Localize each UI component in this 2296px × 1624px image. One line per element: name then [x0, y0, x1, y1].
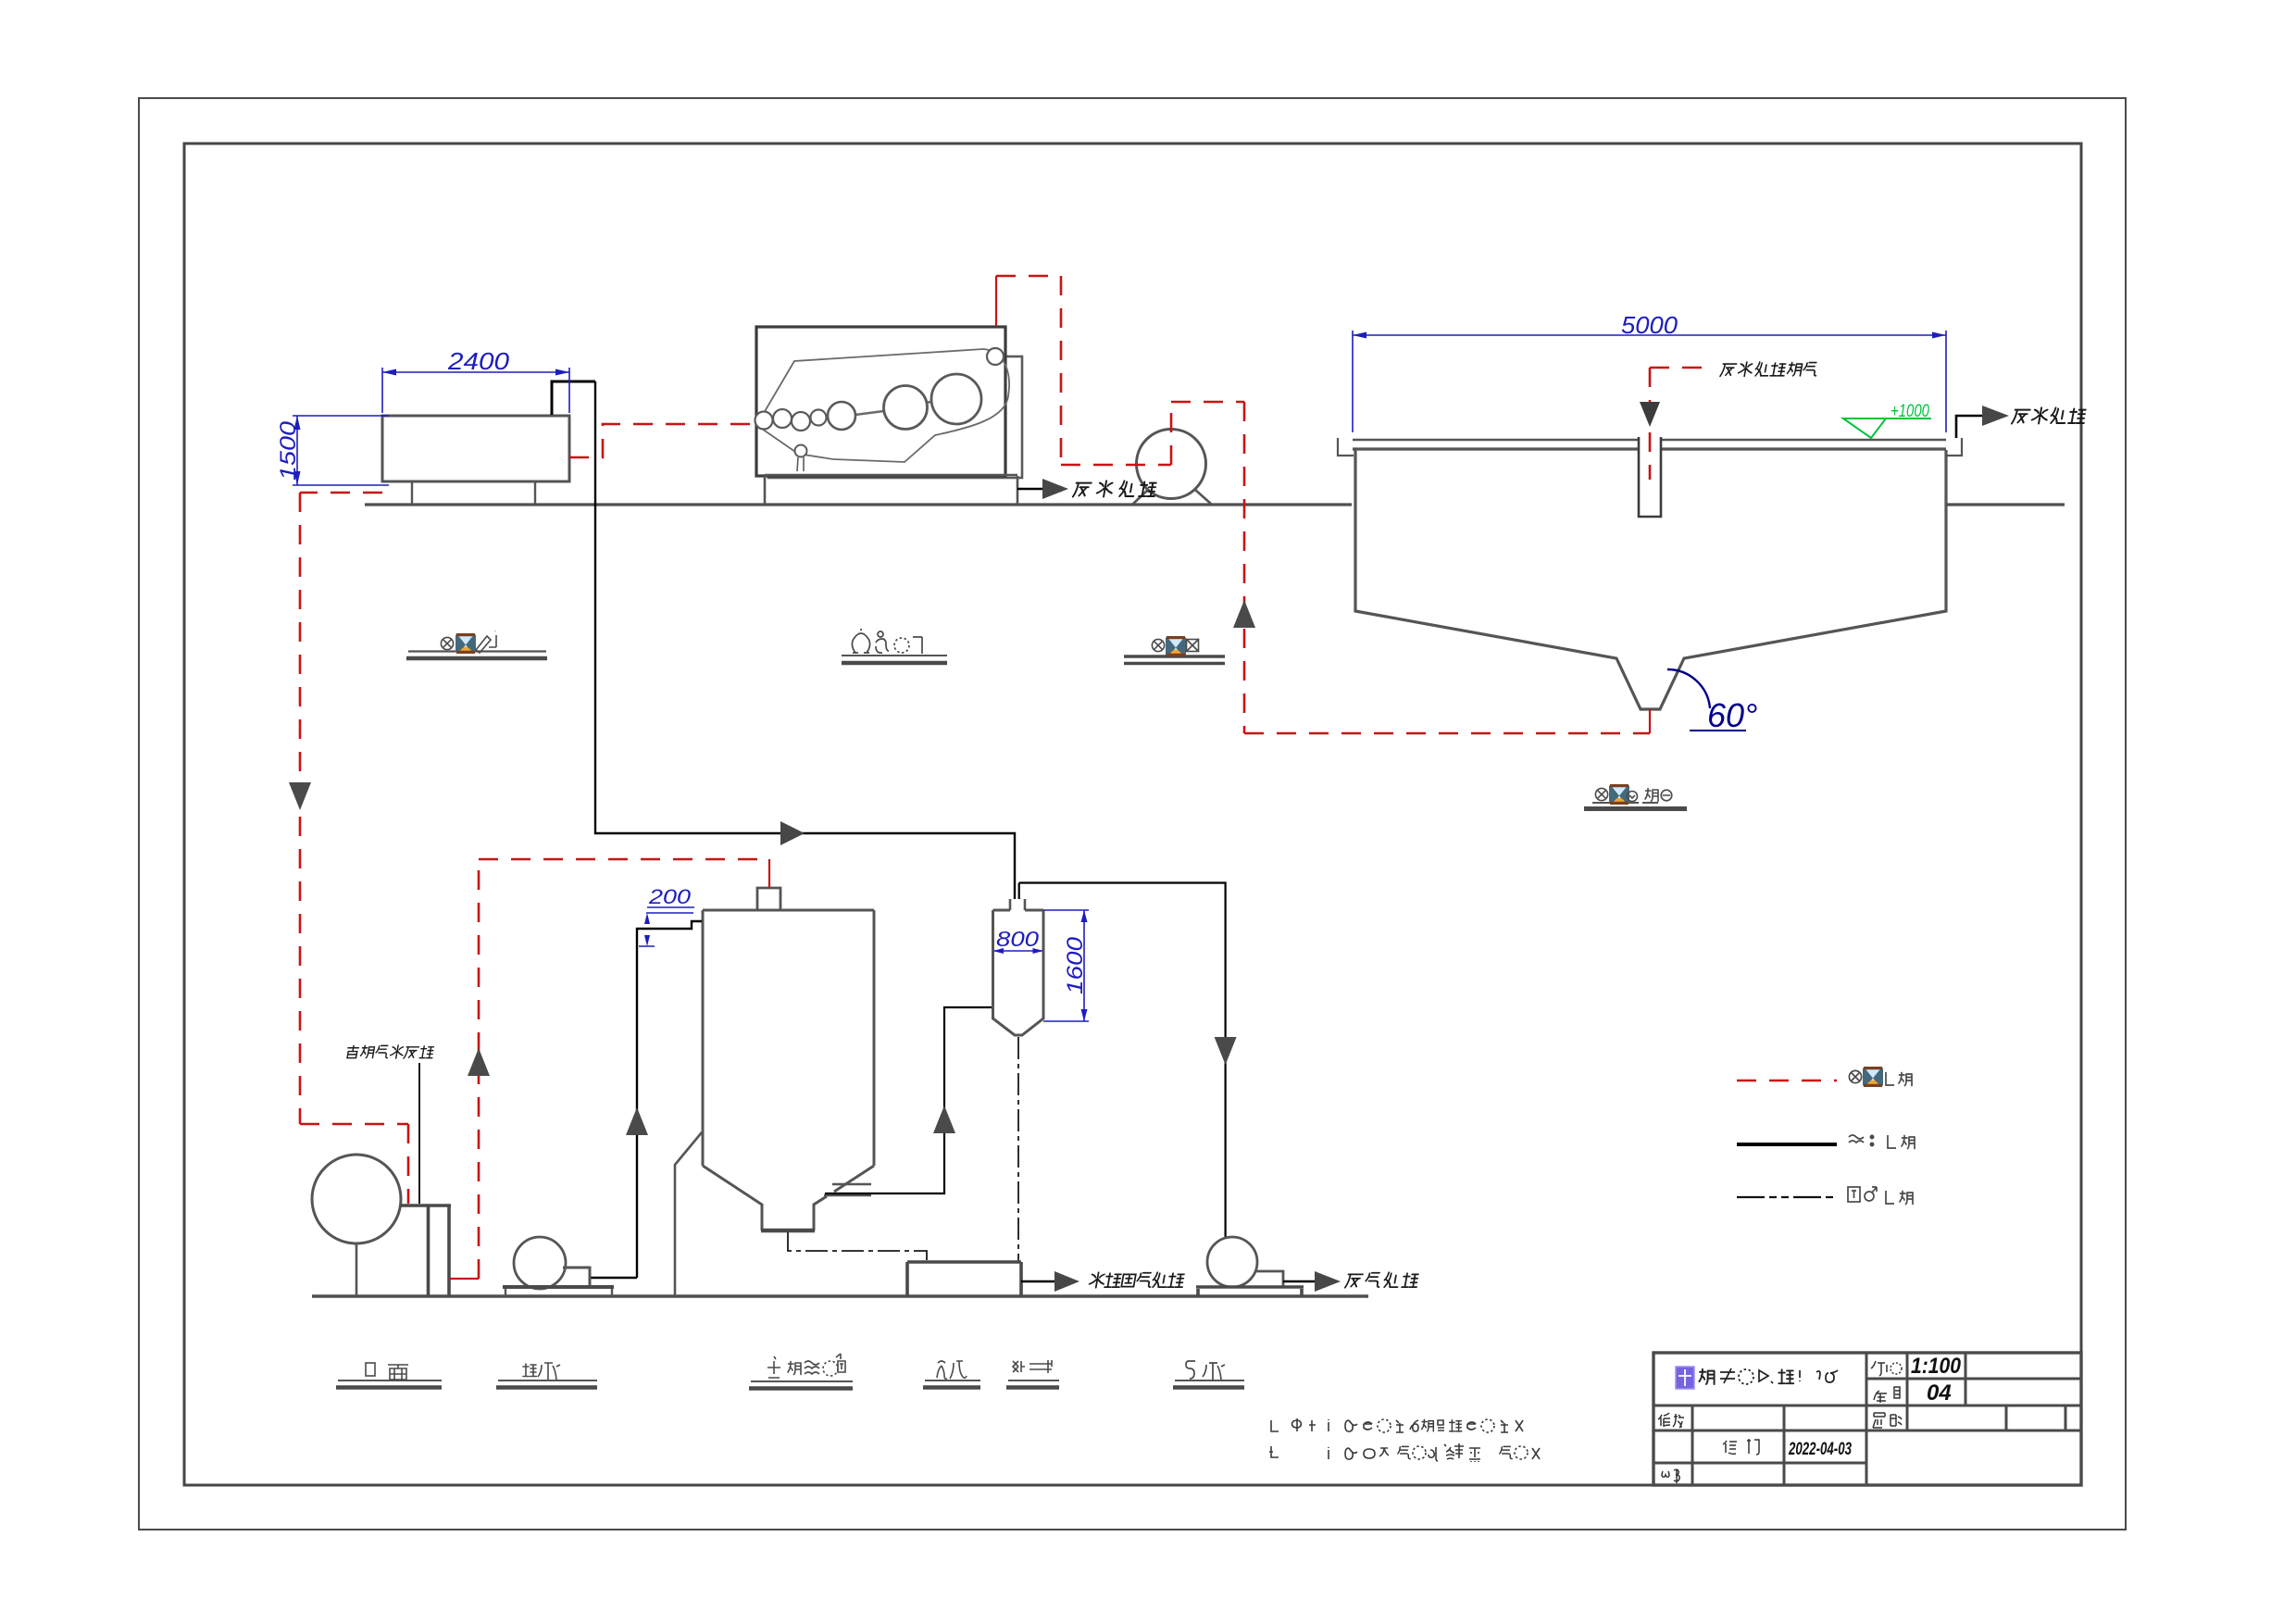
- svg-text:60°: 60°: [1707, 696, 1757, 734]
- svg-text:04: 04: [1927, 1380, 1952, 1405]
- svg-text:1:100: 1:100: [1911, 1354, 1962, 1379]
- svg-text:5000: 5000: [1621, 311, 1678, 339]
- svg-text:1500: 1500: [276, 420, 301, 481]
- svg-text:200: 200: [648, 885, 692, 908]
- svg-text:2400: 2400: [447, 347, 510, 375]
- svg-text:1600: 1600: [1063, 936, 1088, 994]
- svg-text:800: 800: [996, 927, 1039, 951]
- svg-text:2022-04-03: 2022-04-03: [1788, 1440, 1852, 1459]
- svg-text:+1000: +1000: [1890, 402, 1929, 421]
